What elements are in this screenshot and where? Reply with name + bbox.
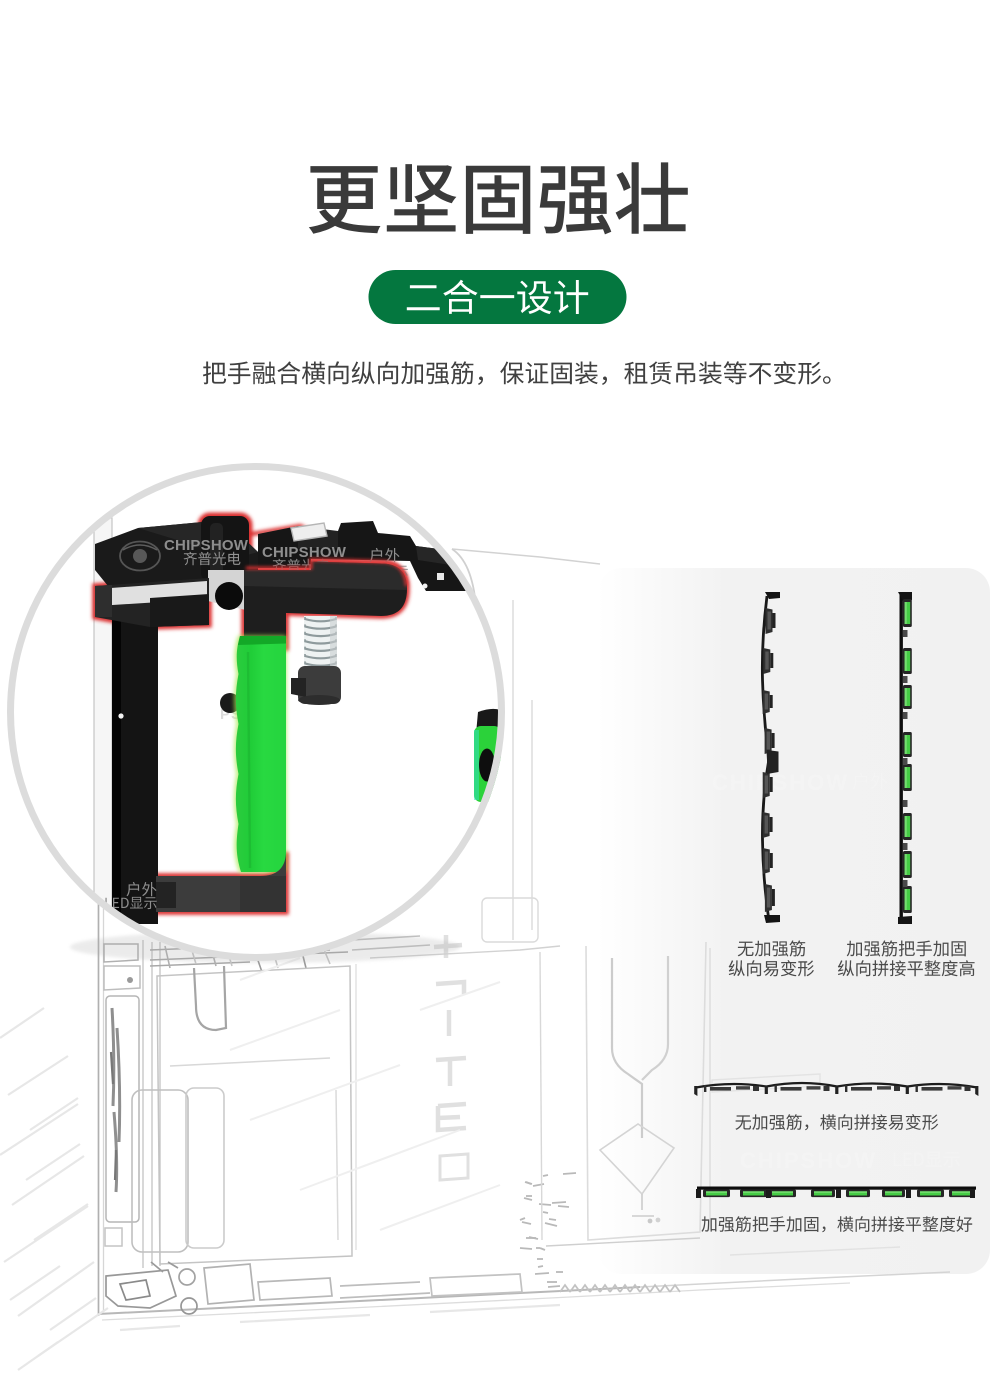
svg-text:CHIPSHOW: CHIPSHOW	[164, 537, 249, 554]
svg-text:CHIPSHOW: CHIPSHOW	[712, 770, 849, 795]
svg-text:CHIPSHOW: CHIPSHOW	[262, 544, 347, 561]
svg-text:CHIPSHOW: CHIPSHOW	[740, 1148, 877, 1173]
